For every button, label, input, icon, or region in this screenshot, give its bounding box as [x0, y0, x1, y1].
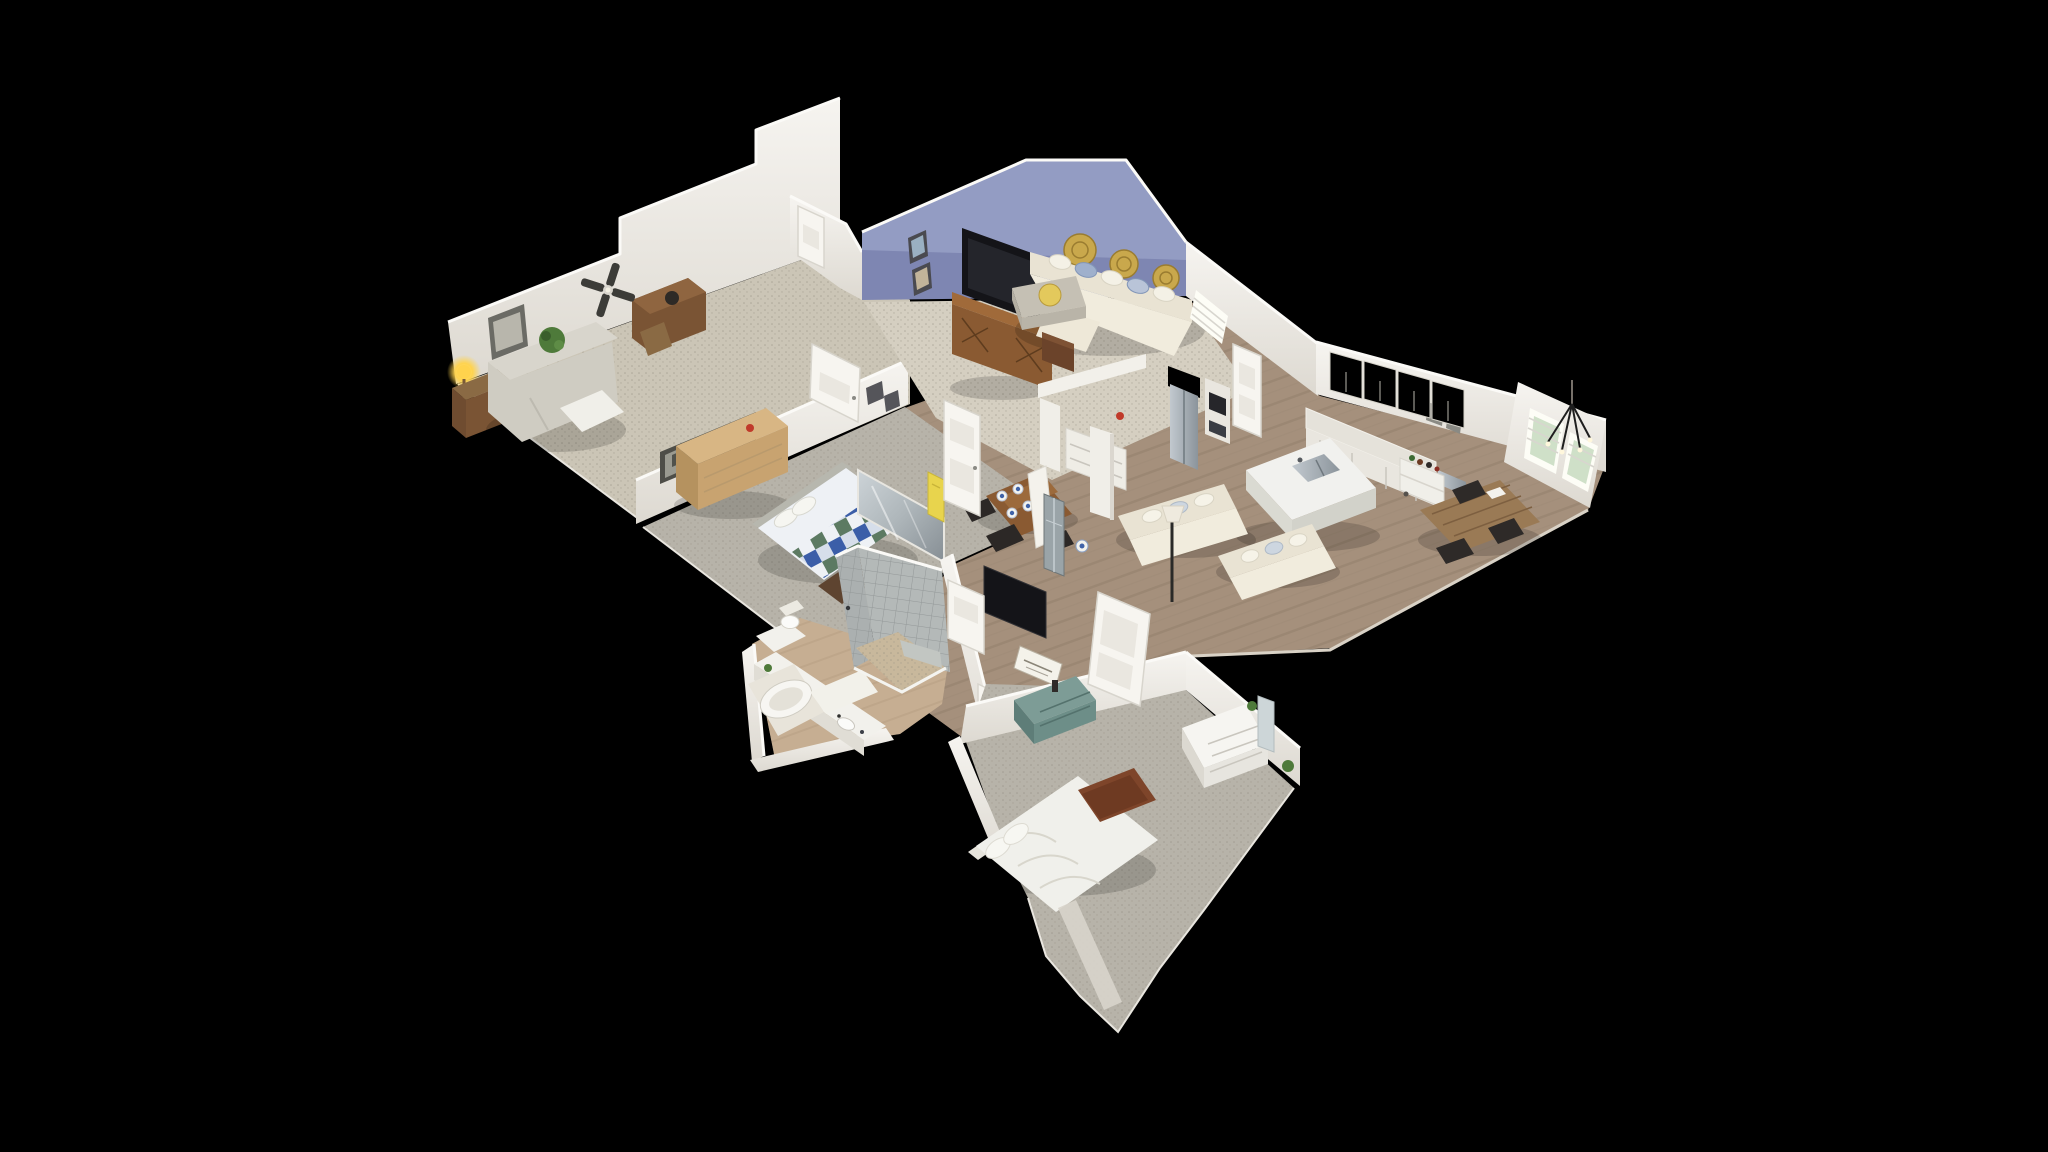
dollhouse-3d-view[interactable]	[0, 0, 2048, 1152]
shower-handle	[846, 606, 850, 610]
dresser-lamp	[1052, 680, 1058, 692]
yellow-banner	[928, 472, 944, 522]
red-decor-item	[746, 424, 754, 432]
floor-vase	[1076, 540, 1088, 552]
refrigerator	[1168, 366, 1200, 470]
red-extinguisher	[1116, 412, 1124, 420]
wall-oven	[1205, 378, 1230, 444]
vanity-plant	[764, 664, 772, 672]
round-tray	[1039, 284, 1061, 306]
corner-plant	[1282, 760, 1294, 772]
viewer-stage	[0, 0, 2048, 1152]
dresser-plant	[1247, 701, 1257, 711]
dresser-mirror	[1258, 696, 1274, 752]
potted-plant	[539, 327, 565, 353]
pantry-door	[1233, 344, 1261, 437]
hall-door-1	[944, 400, 980, 516]
china-cabinet	[1044, 494, 1064, 576]
